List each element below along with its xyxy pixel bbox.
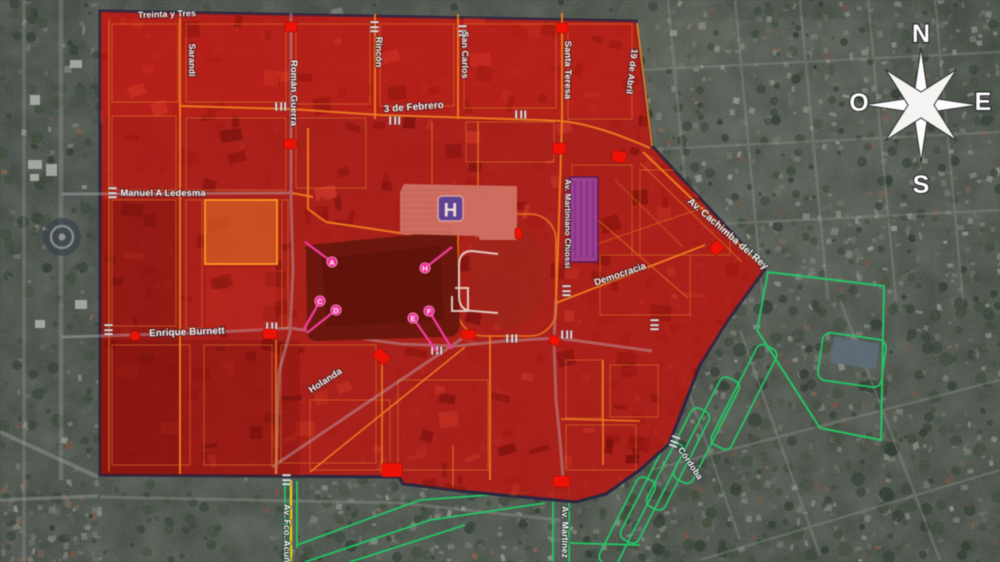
svg-text:Av. Fco. Acuña: Av. Fco. Acuña <box>282 504 292 562</box>
svg-text:F: F <box>427 307 432 316</box>
svg-text:N: N <box>912 20 930 48</box>
svg-text:Román Guerra: Román Guerra <box>288 60 299 127</box>
svg-text:Santa Teresa: Santa Teresa <box>562 41 573 100</box>
svg-text:Manuel A Ledesma: Manuel A Ledesma <box>120 188 206 199</box>
svg-text:H: H <box>444 201 458 222</box>
svg-text:E: E <box>975 88 992 116</box>
svg-text:San Carlos: San Carlos <box>460 31 470 78</box>
svg-text:Av. Martiniano Chiossi: Av. Martiniano Chiossi <box>563 179 573 268</box>
svg-text:S: S <box>913 171 930 199</box>
svg-text:O: O <box>849 89 868 117</box>
svg-text:Treinta y Tres: Treinta y Tres <box>138 8 196 20</box>
svg-text:C: C <box>317 297 323 306</box>
svg-text:E: E <box>410 314 415 323</box>
svg-text:A: A <box>329 258 335 267</box>
svg-text:Av. Martínez: Av. Martínez <box>560 506 570 559</box>
svg-text:Sarandí: Sarandí <box>187 43 197 77</box>
svg-text:H: H <box>422 264 427 273</box>
svg-text:D: D <box>333 306 339 315</box>
svg-text:Rincón: Rincón <box>374 37 384 68</box>
